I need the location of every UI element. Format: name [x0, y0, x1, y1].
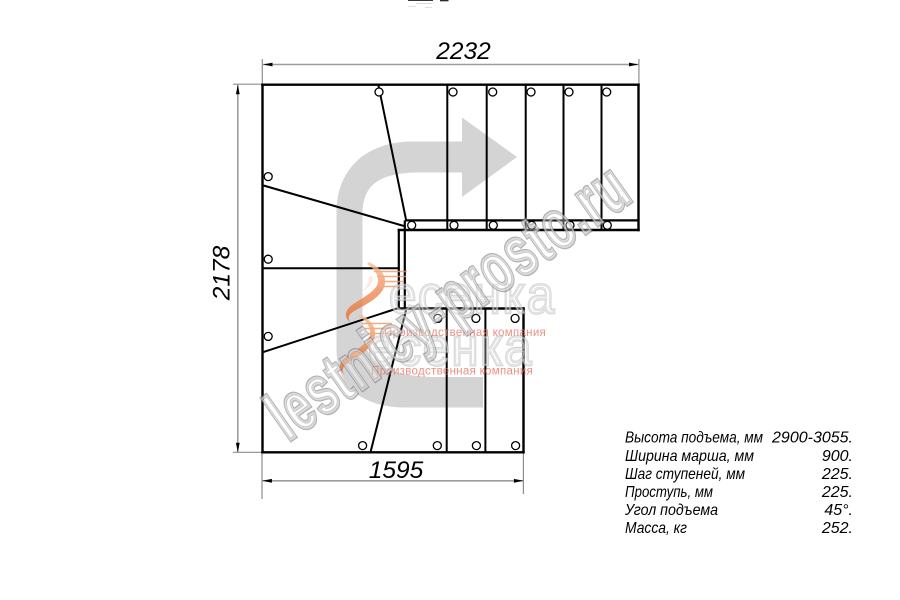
svg-text:2178: 2178 [209, 245, 236, 301]
svg-text:900.: 900. [822, 448, 853, 465]
svg-text:252.: 252. [821, 520, 853, 537]
svg-text:2900-3055.: 2900-3055. [771, 430, 853, 447]
svg-text:Высота подъема, мм: Высота подъема, мм [625, 430, 763, 447]
svg-text:Угол подъема: Угол подъема [624, 502, 718, 519]
svg-text:1595: 1595 [369, 457, 424, 484]
svg-text:Ширина марша, мм: Ширина марша, мм [625, 448, 754, 465]
svg-text:225.: 225. [821, 466, 853, 483]
svg-text:225.: 225. [821, 484, 853, 501]
svg-text:45°.: 45°. [824, 502, 853, 519]
svg-text:Масса, кг: Масса, кг [625, 520, 687, 537]
svg-text:2232: 2232 [435, 38, 491, 65]
svg-text:Проступь, мм: Проступь, мм [625, 484, 713, 501]
svg-text:Шаг ступеней, мм: Шаг ступеней, мм [625, 466, 745, 483]
